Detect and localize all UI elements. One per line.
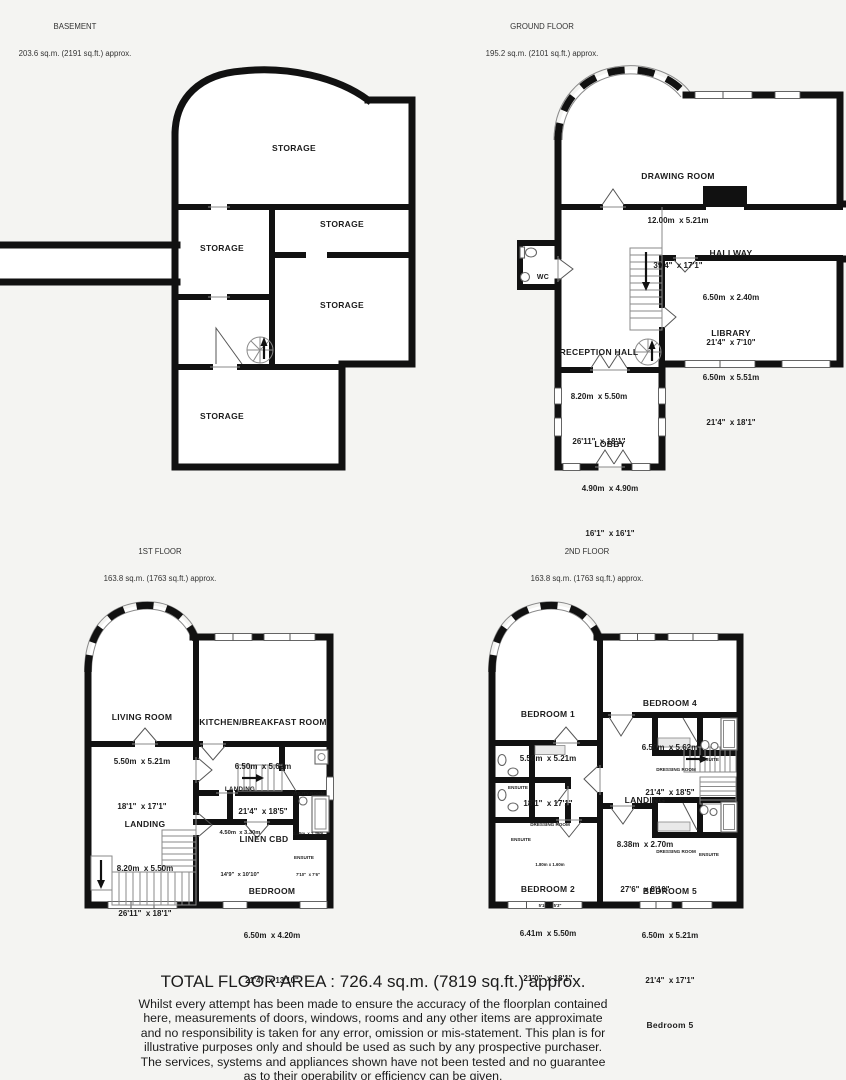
- room-label-ensuite-left-bottom: ENSUITE: [511, 801, 531, 860]
- room-label-ensuite-bottom: ENSUITE: [699, 816, 719, 875]
- footer: TOTAL FLOOR AREA : 726.4 sq.m. (7819 sq.…: [133, 971, 613, 1080]
- room-label-landing-main: LANDING 8.20m x 5.50m 26'11" x 18'1": [117, 784, 173, 936]
- room-label-storage-3: STORAGE: [320, 220, 364, 229]
- room-label-ensuite-left-top: ENSUITE: [508, 749, 528, 808]
- floor-title-ground: GROUND FLOOR 195.2 sq.m. (2101 sq.ft.) a…: [486, 4, 599, 67]
- room-label-lobby: LOBBY 4.90m x 4.90m 16'1" x 16'1": [582, 404, 638, 556]
- room-label-storage-4: STORAGE: [320, 301, 364, 310]
- floor-title-first: 1ST FLOOR 163.8 sq.m. (1763 sq.ft.) appr…: [104, 529, 217, 592]
- window: [659, 388, 666, 404]
- floorplan-sheet: BASEMENT 203.6 sq.m. (2191 sq.ft.) appro…: [0, 0, 846, 1080]
- window: [659, 418, 666, 436]
- sink-icon: [710, 809, 717, 816]
- disclaimer-text: Whilst every attempt has been made to en…: [133, 997, 613, 1080]
- room-label-dressing-left: DRESSING ROOM 1.80m x 1.60m 5'10" x 5'3": [530, 786, 570, 927]
- toilet-icon: [520, 247, 537, 258]
- basement-plan: [0, 70, 412, 467]
- shower: [721, 718, 737, 750]
- toilet-icon: [498, 755, 506, 766]
- room-label-dressing-bottom: DRESSING ROOM: [656, 813, 696, 872]
- room-label-library: LIBRARY 6.50m x 5.51m 21'4" x 18'1": [703, 293, 759, 445]
- toilet-icon: [700, 806, 708, 815]
- room-label-storage-2: STORAGE: [200, 244, 244, 253]
- sink-icon: [521, 273, 530, 282]
- room-label-ensuite-top: ENSUITE: [699, 721, 719, 780]
- window: [782, 361, 830, 368]
- floor-title-basement: BASEMENT 203.6 sq.m. (2191 sq.ft.) appro…: [19, 4, 132, 67]
- window: [775, 92, 800, 99]
- room-label-storage-1: STORAGE: [272, 144, 316, 153]
- total-floor-area: TOTAL FLOOR AREA : 726.4 sq.m. (7819 sq.…: [133, 971, 613, 993]
- room-label-dressing-top: DRESSING ROOM: [656, 731, 696, 790]
- room-label-storage-5: STORAGE: [200, 412, 244, 421]
- toilet-icon: [498, 790, 506, 801]
- room-label-bedroom-5: BEDROOM 5 6.50m x 5.21m 21'4" x 17'1" Be…: [642, 851, 698, 1049]
- window: [563, 464, 580, 471]
- spiral-staircase: [247, 337, 273, 363]
- window: [300, 902, 327, 909]
- room-label-wc: WC: [537, 259, 549, 289]
- shower: [721, 802, 737, 832]
